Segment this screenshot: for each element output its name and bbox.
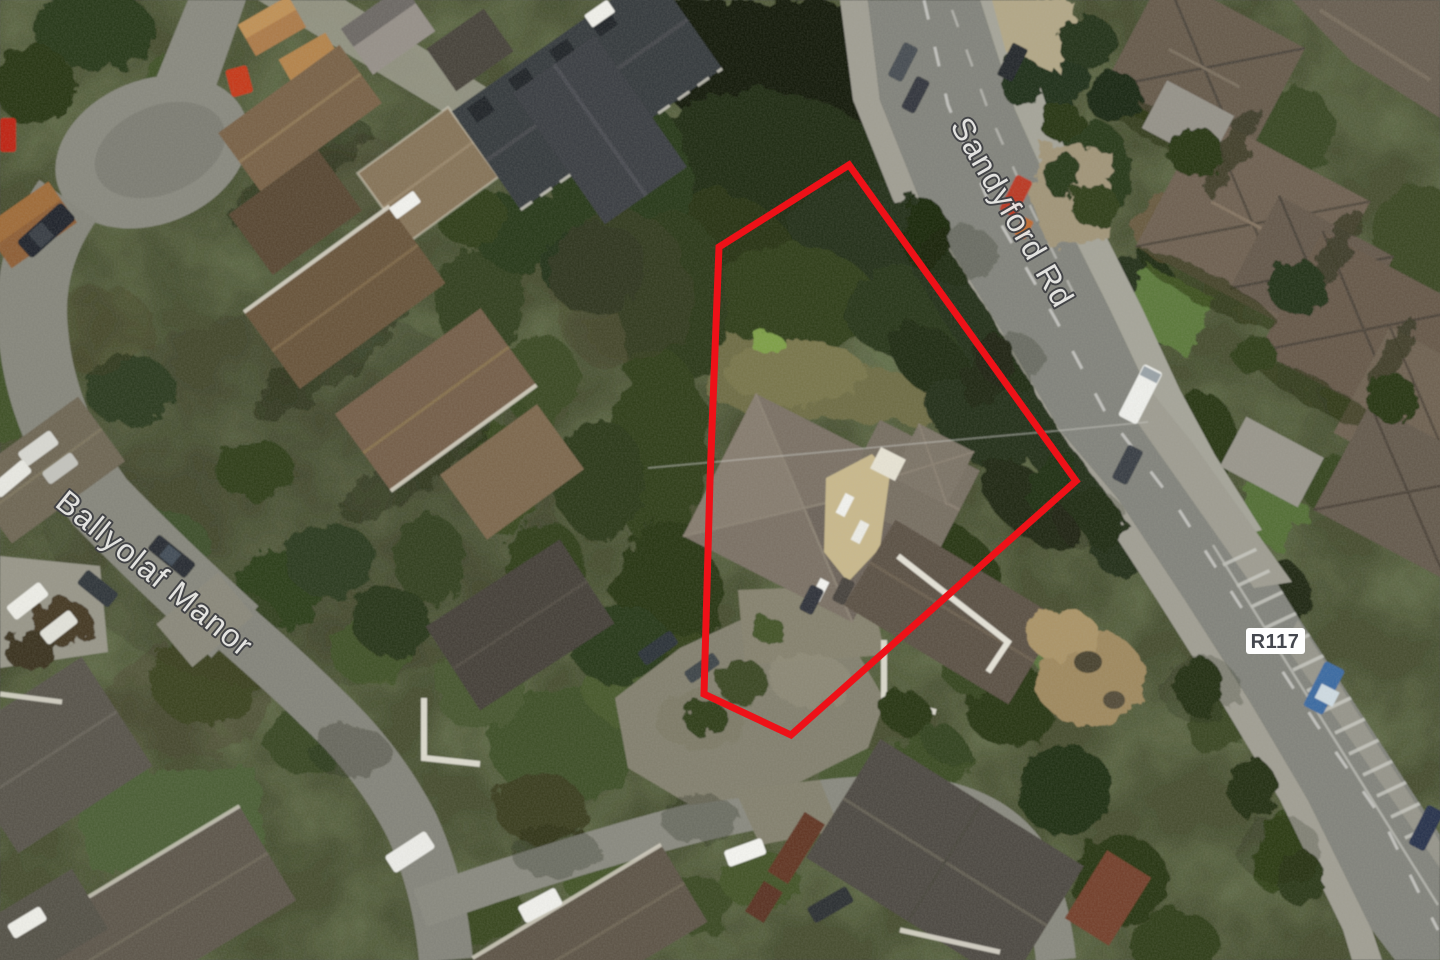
svg-text:R117: R117 [1251, 631, 1300, 653]
